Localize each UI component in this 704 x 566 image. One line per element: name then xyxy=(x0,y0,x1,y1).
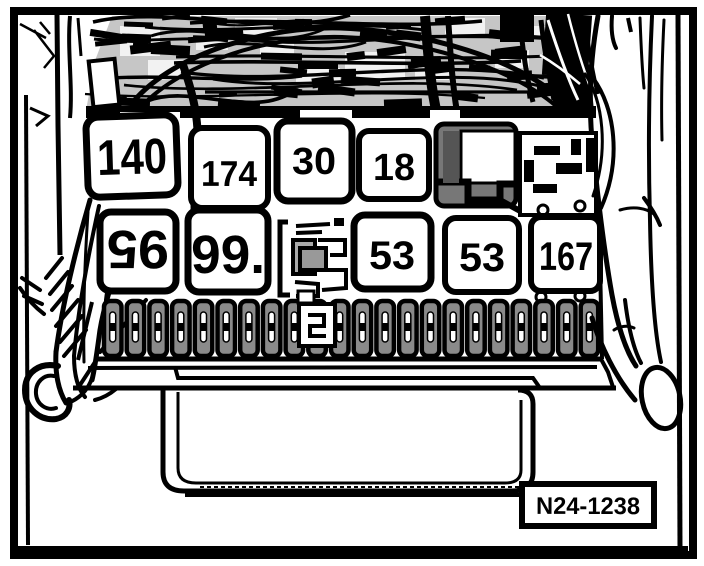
svg-text:18: 18 xyxy=(373,147,415,189)
svg-text:95: 95 xyxy=(107,219,169,279)
svg-text:N24-1238: N24-1238 xyxy=(536,493,640,520)
svg-text:99.: 99. xyxy=(191,225,265,285)
svg-text:167: 167 xyxy=(539,235,593,279)
svg-text:174: 174 xyxy=(201,153,257,194)
svg-text:53: 53 xyxy=(369,234,415,278)
svg-text:140: 140 xyxy=(96,128,168,186)
svg-text:30: 30 xyxy=(292,141,336,183)
svg-text:53: 53 xyxy=(459,236,505,280)
